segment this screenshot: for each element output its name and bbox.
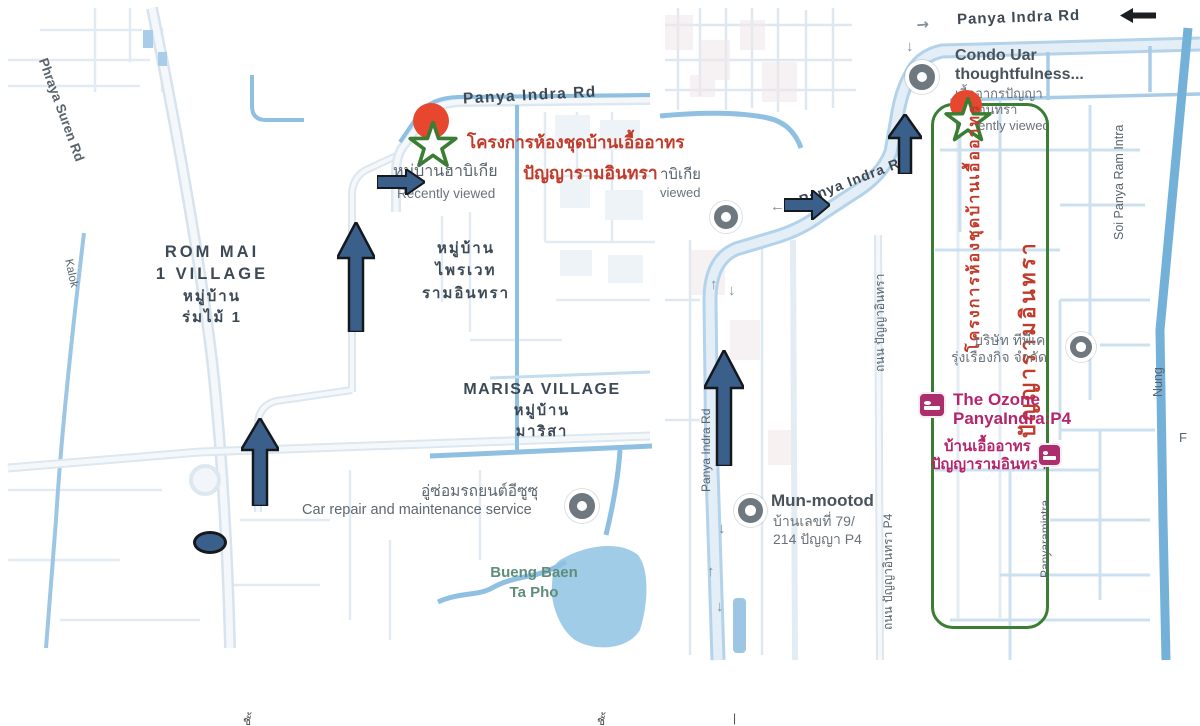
annotation-vertical-red-1: โครงการห้องชุดบ้านเอื้ออาทร [966, 103, 984, 352]
recently-viewed-cut: viewed [660, 186, 700, 201]
oneway-arrow-icon-4: ↑ [710, 276, 718, 293]
road-label-thanon-panya-upper: ถนน ปัญญาอินทรา [874, 274, 888, 372]
poi-label-mun-line3: 214 ปัญญา P4 [773, 531, 862, 547]
road-label-panyaramintra: Panyaramintra [1039, 500, 1053, 578]
bottom-text-fragment-3: | [733, 711, 736, 725]
route-arrow-right-right-map [784, 190, 830, 220]
bottom-text-fragment-1: ชั้ [243, 712, 251, 726]
destination-label-line2-left: ปัญญารามอินทรา [523, 163, 658, 183]
poi-circle-icon-car-repair [565, 489, 599, 523]
poi-label-mun-line1: Mun-mootod [771, 491, 874, 511]
village-label-rom-mai-en1: ROM MAI [122, 243, 302, 262]
poi-label-habitia-cut: าบิเกีย [660, 166, 701, 183]
village-label-rom-mai-th2: ร่มไม้ 1 [122, 309, 302, 326]
water-label-bueng2: Ta Pho [477, 584, 591, 601]
village-label-marisa-th2: มาริสา [450, 424, 634, 441]
oneway-arrow-icon-7: ↑ [707, 563, 715, 580]
direction-arrow-left-icon [1120, 8, 1156, 23]
destination-label-line1-left: โครงการห้องชุดบ้านเอื้ออาทร [467, 133, 684, 153]
route-arrow-right-left-map [377, 169, 425, 195]
poi-circle-icon-condo [905, 60, 939, 94]
oneway-arrow-icon-6: ↓ [718, 520, 726, 537]
poi-label-baan-line1: บ้านเอื้ออาทร [944, 438, 1031, 455]
village-label-marisa-th1: หมู่บ้าน [450, 403, 634, 420]
poi-label-condo-line2: thoughtfulness... [955, 66, 1084, 84]
road-label-soi-panya-ram-intra: Soi Panya Ram Intra [1112, 125, 1126, 240]
village-label-marisa-en: MARISA VILLAGE [450, 381, 634, 399]
route-arrow-up-2-left-map [241, 418, 279, 506]
oneway-arrow-icon-5: ↓ [728, 282, 736, 299]
water-label-bueng1: Bueng Baen [477, 564, 591, 581]
village-label-private3: รามอินทรา [400, 285, 532, 302]
poi-label-baan-line2: ปัญญารามอินทรา [931, 456, 1047, 473]
route-start-dot [193, 531, 227, 554]
edge-label-f: F [1179, 431, 1187, 446]
village-label-private1: หมู่บ้าน [400, 240, 532, 257]
route-arrow-up-big-right-map [704, 350, 744, 466]
poi-label-ozone-line2: PanyaIndra:P4 [953, 409, 1071, 429]
village-label-rom-mai-th1: หมู่บ้าน [122, 288, 302, 305]
oneway-arrow-icon-8: ↓ [716, 598, 724, 615]
road-label-thanon-panya-lower: ถนน ปัญญาอินทรา P4 [882, 514, 896, 630]
village-label-rom-mai-en2: 1 VILLAGE [122, 265, 302, 284]
poi-circle-icon-company [1066, 332, 1096, 362]
poi-label-ozone-line1: The Ozone [953, 390, 1040, 410]
lodging-poi-icon-ozone [918, 392, 946, 418]
oneway-arrow-icon-2: ↓ [906, 38, 914, 55]
poi-label-mun-line2: บ้านเลขที่ 79/ [773, 513, 855, 529]
poi-circle-icon-mun [734, 494, 767, 527]
lodging-poi-icon-baan [1037, 443, 1062, 467]
poi-label-car-repair-en: Car repair and maintenance service [302, 502, 532, 519]
poi-label-company-line2: รุ่งเรืองกิจ จำกัด [951, 349, 1047, 365]
village-label-private2: ไพรเวท [400, 262, 532, 279]
route-arrow-up-1-left-map [337, 222, 375, 332]
oneway-arrow-icon-3: ← [770, 198, 785, 215]
poi-circle-icon-habitia [710, 201, 742, 233]
canal-label-nung: Nung [1151, 367, 1165, 397]
poi-label-company-line1: บริษัท ทีพีเค [974, 332, 1045, 348]
scanned-map-directions-page: Phraya Suren Rd Kalok Panya Indra Rd โคร… [0, 0, 1200, 726]
bottom-text-fragment-2: ชั้ [597, 712, 605, 726]
poi-label-condo-line1: Condo Uar [955, 47, 1037, 65]
poi-label-car-repair-th: อู่ซ่อมรถยนต์อีซูซุ [421, 483, 538, 501]
route-arrow-up-curve-right-map [888, 114, 922, 174]
